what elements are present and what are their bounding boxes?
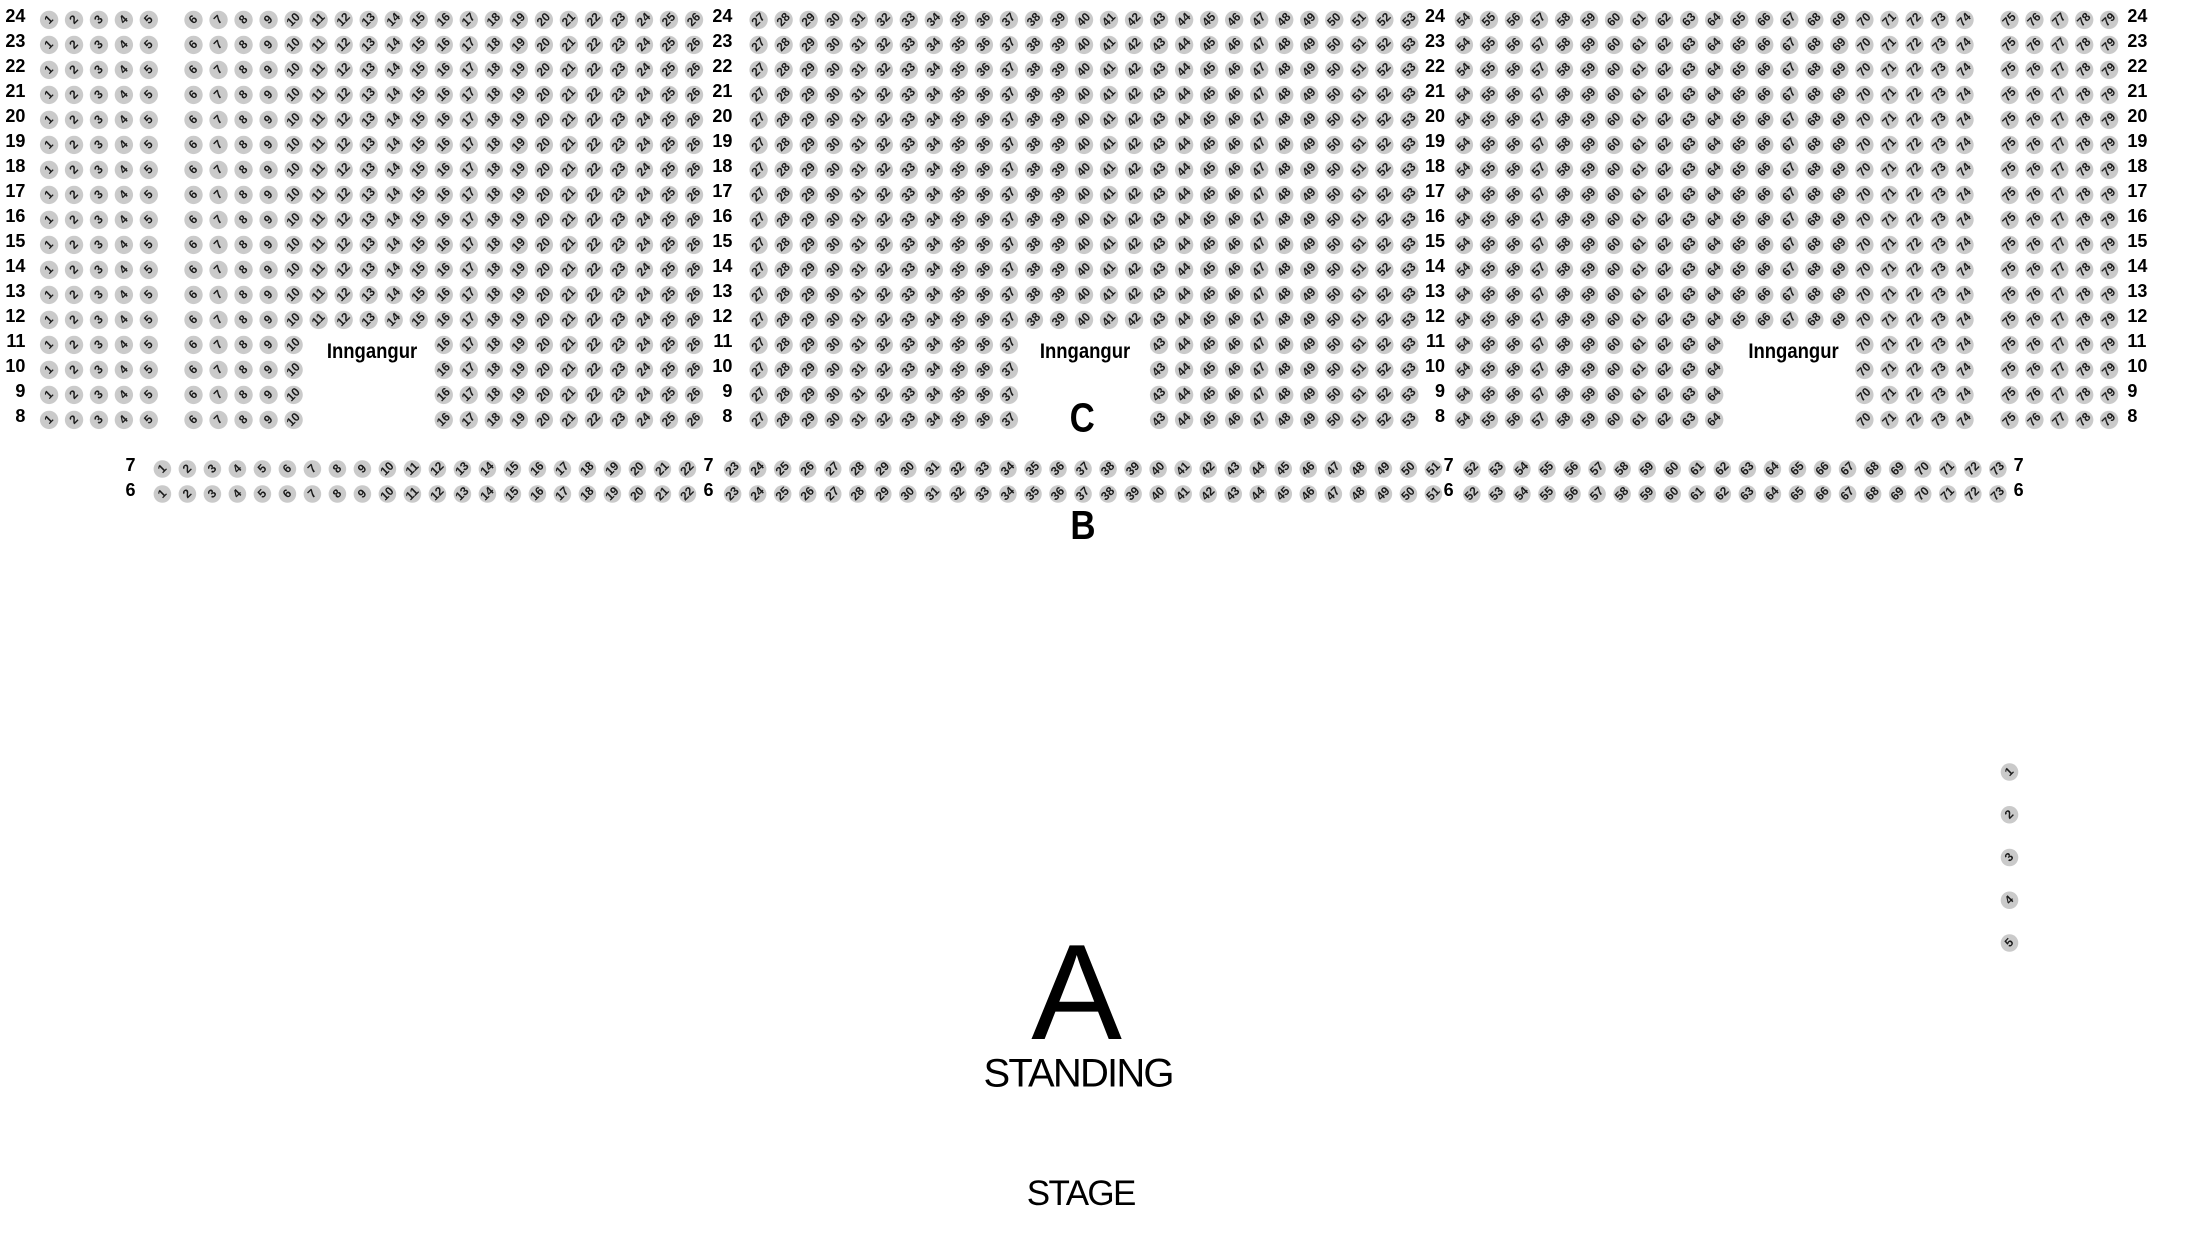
svg-text:14: 14 [2127,256,2147,276]
svg-text:17: 17 [712,181,732,201]
svg-text:12: 12 [5,306,25,326]
svg-text:22: 22 [712,56,732,76]
svg-text:15: 15 [712,231,732,251]
svg-text:22: 22 [1425,56,1445,76]
svg-text:12: 12 [1425,306,1445,326]
svg-text:20: 20 [1425,106,1445,126]
svg-text:14: 14 [712,256,732,276]
svg-text:9: 9 [15,381,25,401]
svg-text:24: 24 [1425,6,1445,26]
svg-text:18: 18 [712,156,732,176]
svg-text:7: 7 [2014,455,2024,475]
svg-text:STAGE: STAGE [1027,1174,1135,1213]
svg-text:11: 11 [6,331,25,351]
svg-text:19: 19 [2127,131,2147,151]
svg-text:20: 20 [2127,106,2147,126]
svg-text:9: 9 [1435,381,1445,401]
svg-text:15: 15 [1425,231,1445,251]
svg-text:18: 18 [1425,156,1445,176]
svg-text:Inngangur: Inngangur [1040,340,1131,364]
svg-text:15: 15 [2127,231,2147,251]
svg-text:23: 23 [2127,31,2147,51]
svg-text:11: 11 [1426,331,1445,351]
svg-text:22: 22 [5,56,25,76]
svg-text:8: 8 [15,406,25,426]
svg-text:A: A [1031,916,1122,1068]
svg-text:24: 24 [2127,6,2147,26]
svg-text:20: 20 [712,106,732,126]
svg-text:10: 10 [5,356,25,376]
svg-text:19: 19 [5,131,25,151]
svg-text:17: 17 [2127,181,2147,201]
svg-text:16: 16 [712,206,732,226]
svg-text:7: 7 [1444,455,1454,475]
svg-text:10: 10 [712,356,732,376]
svg-text:16: 16 [2127,206,2147,226]
svg-text:16: 16 [5,206,25,226]
svg-text:9: 9 [2127,381,2137,401]
svg-text:19: 19 [1425,131,1445,151]
svg-text:16: 16 [1425,206,1445,226]
svg-text:14: 14 [1425,256,1445,276]
svg-text:21: 21 [2127,81,2147,101]
svg-text:18: 18 [5,156,25,176]
svg-text:Inngangur: Inngangur [1748,340,1839,364]
svg-text:10: 10 [2127,356,2147,376]
svg-text:20: 20 [5,106,25,126]
svg-text:13: 13 [1425,281,1445,301]
svg-text:21: 21 [5,81,25,101]
svg-text:8: 8 [722,406,732,426]
svg-text:17: 17 [5,181,25,201]
svg-text:12: 12 [712,306,732,326]
svg-text:19: 19 [712,131,732,151]
svg-text:23: 23 [5,31,25,51]
svg-text:6: 6 [125,480,135,500]
svg-text:11: 11 [2127,331,2146,351]
svg-text:6: 6 [703,480,713,500]
svg-text:13: 13 [2127,281,2147,301]
svg-text:23: 23 [712,31,732,51]
svg-text:11: 11 [713,331,732,351]
svg-text:13: 13 [5,281,25,301]
svg-text:Inngangur: Inngangur [327,340,418,364]
svg-text:12: 12 [2127,306,2147,326]
svg-text:14: 14 [5,256,25,276]
svg-text:7: 7 [125,455,135,475]
svg-text:10: 10 [1425,356,1445,376]
svg-text:6: 6 [1444,480,1454,500]
svg-text:8: 8 [2127,406,2137,426]
svg-text:23: 23 [1425,31,1445,51]
svg-text:15: 15 [5,231,25,251]
svg-text:13: 13 [712,281,732,301]
svg-text:17: 17 [1425,181,1445,201]
svg-text:STANDING: STANDING [983,1052,1172,1096]
svg-text:8: 8 [1435,406,1445,426]
svg-text:C: C [1070,396,1095,441]
svg-text:22: 22 [2127,56,2147,76]
svg-text:6: 6 [2014,480,2024,500]
svg-text:21: 21 [712,81,732,101]
svg-text:7: 7 [703,455,713,475]
svg-text:18: 18 [2127,156,2147,176]
svg-text:9: 9 [722,381,732,401]
svg-text:B: B [1070,504,1095,549]
svg-text:21: 21 [1425,81,1445,101]
svg-text:24: 24 [5,6,25,26]
svg-text:24: 24 [712,6,732,26]
